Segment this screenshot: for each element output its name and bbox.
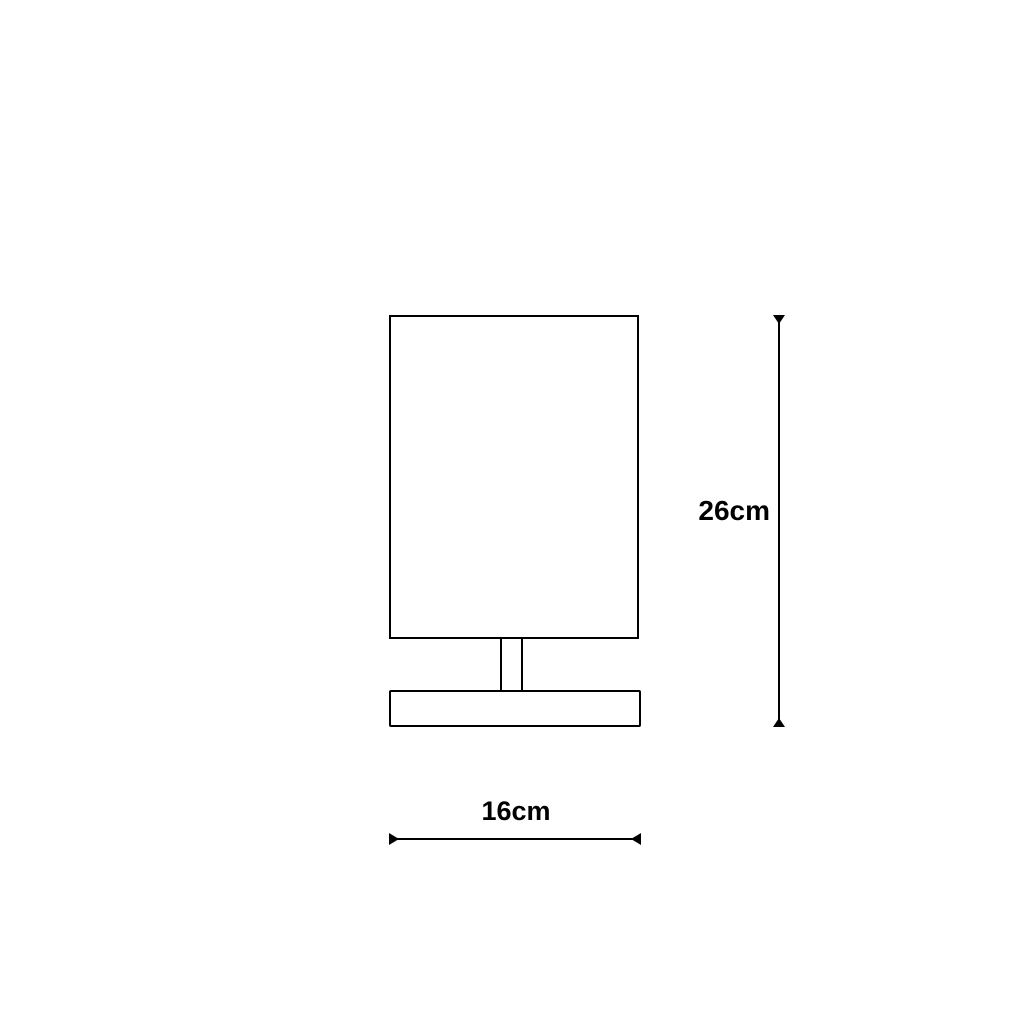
lamp-shade [389,315,639,639]
width-dimension-label: 16cm [455,798,577,825]
dimension-diagram: 26cm 16cm [0,0,1024,1024]
arrow-top-icon [773,315,785,324]
width-dimension-line [389,838,641,840]
lamp-stem [500,639,523,690]
lamp-base [389,690,641,727]
arrow-bottom-icon [773,718,785,727]
arrow-left-icon [389,833,399,845]
height-dimension-line [778,316,780,727]
arrow-right-icon [631,833,641,845]
height-dimension-label: 26cm [670,497,770,525]
